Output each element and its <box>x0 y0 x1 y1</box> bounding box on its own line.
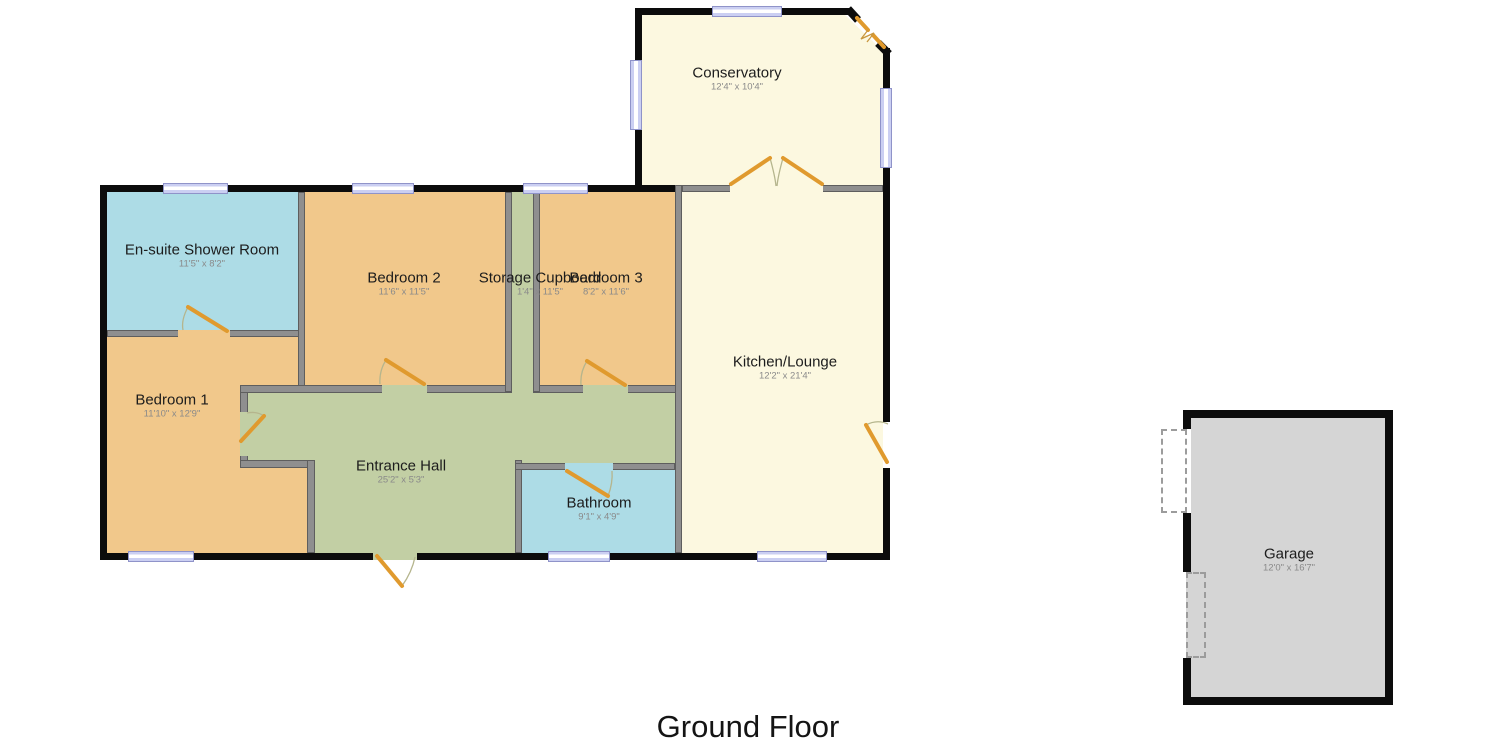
window <box>352 183 414 194</box>
room-name: Bathroom <box>566 494 631 511</box>
wall-garage-right <box>1385 410 1393 705</box>
room-dims: 12'2" x 21'4" <box>733 372 837 383</box>
wall-main-left <box>100 185 107 560</box>
room-label-bedroom3: Bedroom 3 8'2" x 11'6" <box>569 269 642 298</box>
room-name: Bedroom 2 <box>367 269 440 286</box>
room-name: Kitchen/Lounge <box>733 353 837 370</box>
room-dims: 11'10" x 12'9" <box>135 410 208 421</box>
room-name: Garage <box>1263 545 1315 562</box>
window <box>880 88 892 168</box>
conservatory-doors-opening <box>730 185 823 192</box>
window <box>128 551 194 562</box>
wall-garage-left-2 <box>1183 513 1191 572</box>
window <box>630 60 642 130</box>
bedroom3-door-opening <box>583 385 628 393</box>
room-label-entrance-hall: Entrance Hall 25'2" x 5'3" <box>356 457 446 486</box>
room-dims: 9'1" x 4'9" <box>566 513 631 524</box>
wall-hall-bottom-left <box>240 460 315 468</box>
wall-garage-bottom <box>1183 697 1393 705</box>
kitchen-side-door-opening <box>883 422 890 468</box>
room-dims: 11'6" x 11'5" <box>367 288 440 299</box>
room-label-kitchen-lounge: Kitchen/Lounge 12'2" x 21'4" <box>733 353 837 382</box>
room-conservatory <box>642 15 883 185</box>
room-dims: 25'2" x 5'3" <box>356 476 446 487</box>
front-door-opening <box>373 553 417 560</box>
window <box>712 6 782 17</box>
room-dims: 12'4" x 10'4" <box>692 83 781 94</box>
garage-door-dashed-outline <box>1161 429 1187 513</box>
wall-bedroom2-left <box>298 192 305 392</box>
wall-bathroom-left <box>515 460 522 553</box>
wall-garage-left-1 <box>1183 410 1191 429</box>
window <box>163 183 228 194</box>
door-swing-arc <box>402 557 415 586</box>
room-name: Entrance Hall <box>356 457 446 474</box>
room-label-bedroom1: Bedroom 1 11'10" x 12'9" <box>135 391 208 420</box>
room-dims: 11'5" x 8'2" <box>125 260 279 271</box>
wall-bedroom1-ext-right <box>307 460 315 553</box>
room-label-bathroom: Bathroom 9'1" x 4'9" <box>566 494 631 523</box>
wall-garage-left-3 <box>1183 658 1191 705</box>
room-dims: 8'2" x 11'6" <box>569 288 642 299</box>
cupboard-opening <box>512 385 533 393</box>
garage-door-dashed-outline <box>1186 572 1206 658</box>
door-leaf <box>377 556 402 586</box>
room-label-bedroom2: Bedroom 2 11'6" x 11'5" <box>367 269 440 298</box>
window <box>548 551 610 562</box>
floor-title: Ground Floor <box>657 709 840 745</box>
room-label-garage: Garage 12'0" x 16'7" <box>1263 545 1315 574</box>
wall-garage-top <box>1183 410 1393 418</box>
room-label-conservatory: Conservatory 12'4" x 10'4" <box>692 64 781 93</box>
room-name: Bedroom 3 <box>569 269 642 286</box>
wall-kitchen-left <box>675 185 682 553</box>
room-label-ensuite: En-suite Shower Room 11'5" x 8'2" <box>125 241 279 270</box>
room-name: En-suite Shower Room <box>125 241 279 258</box>
room-name: Conservatory <box>692 64 781 81</box>
bedroom1-door-opening <box>240 412 248 456</box>
floor-plan: Conservatory 12'4" x 10'4" En-suite Show… <box>0 0 1500 750</box>
bedroom2-door-opening <box>382 385 427 393</box>
window <box>523 183 588 194</box>
room-name: Bedroom 1 <box>135 391 208 408</box>
room-dims: 12'0" x 16'7" <box>1263 564 1315 575</box>
bathroom-door-opening <box>565 463 613 470</box>
window <box>757 551 827 562</box>
room-entrance-hall <box>240 385 682 468</box>
ensuite-door-opening <box>178 330 230 337</box>
